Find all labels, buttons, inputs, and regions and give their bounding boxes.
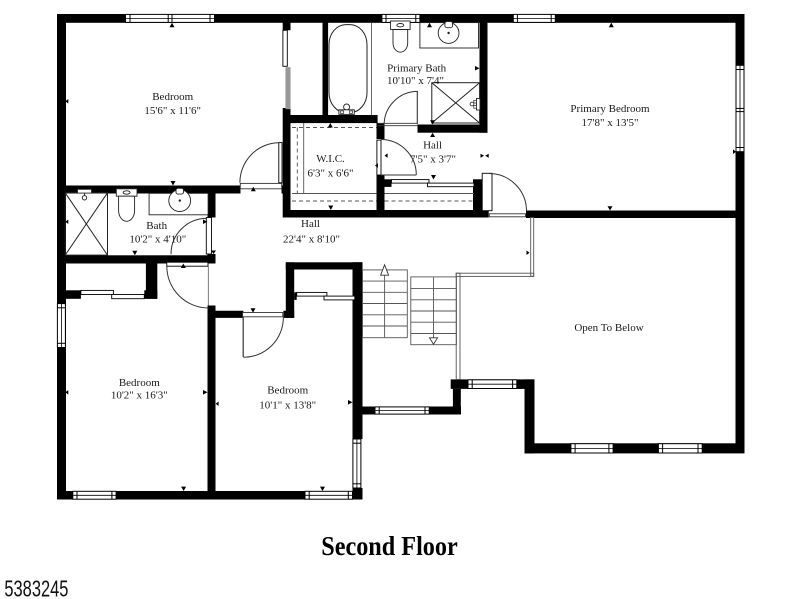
svg-text:15'6" x 11'6": 15'6" x 11'6" bbox=[144, 105, 201, 117]
svg-text:22'4" x 8'10": 22'4" x 8'10" bbox=[283, 233, 340, 245]
svg-text:Bedroom: Bedroom bbox=[119, 377, 160, 389]
svg-text:5383245: 5383245 bbox=[4, 576, 68, 599]
svg-text:Bedroom: Bedroom bbox=[152, 91, 193, 103]
svg-text:10'2" x 4'10": 10'2" x 4'10" bbox=[129, 233, 186, 245]
svg-text:10'1" x 13'8": 10'1" x 13'8" bbox=[259, 399, 316, 411]
svg-text:Open To Below: Open To Below bbox=[574, 322, 643, 334]
svg-text:W.I.C.: W.I.C. bbox=[316, 153, 345, 165]
svg-text:10'10" x 7'4": 10'10" x 7'4" bbox=[387, 75, 444, 87]
svg-text:10'2" x 16'3": 10'2" x 16'3" bbox=[111, 390, 168, 402]
svg-text:17'8" x 13'5": 17'8" x 13'5" bbox=[582, 117, 639, 129]
svg-text:Primary Bath: Primary Bath bbox=[387, 63, 446, 75]
svg-text:Bedroom: Bedroom bbox=[267, 385, 308, 397]
svg-text:6'3" x 6'6": 6'3" x 6'6" bbox=[308, 168, 354, 180]
svg-text:Second Floor: Second Floor bbox=[321, 531, 458, 561]
svg-text:Hall: Hall bbox=[423, 140, 442, 152]
svg-text:Hall: Hall bbox=[301, 218, 320, 230]
svg-text:Bath: Bath bbox=[146, 220, 167, 232]
svg-text:7'5" x 3'7": 7'5" x 3'7" bbox=[410, 154, 456, 166]
svg-text:Primary Bedroom: Primary Bedroom bbox=[570, 103, 650, 115]
